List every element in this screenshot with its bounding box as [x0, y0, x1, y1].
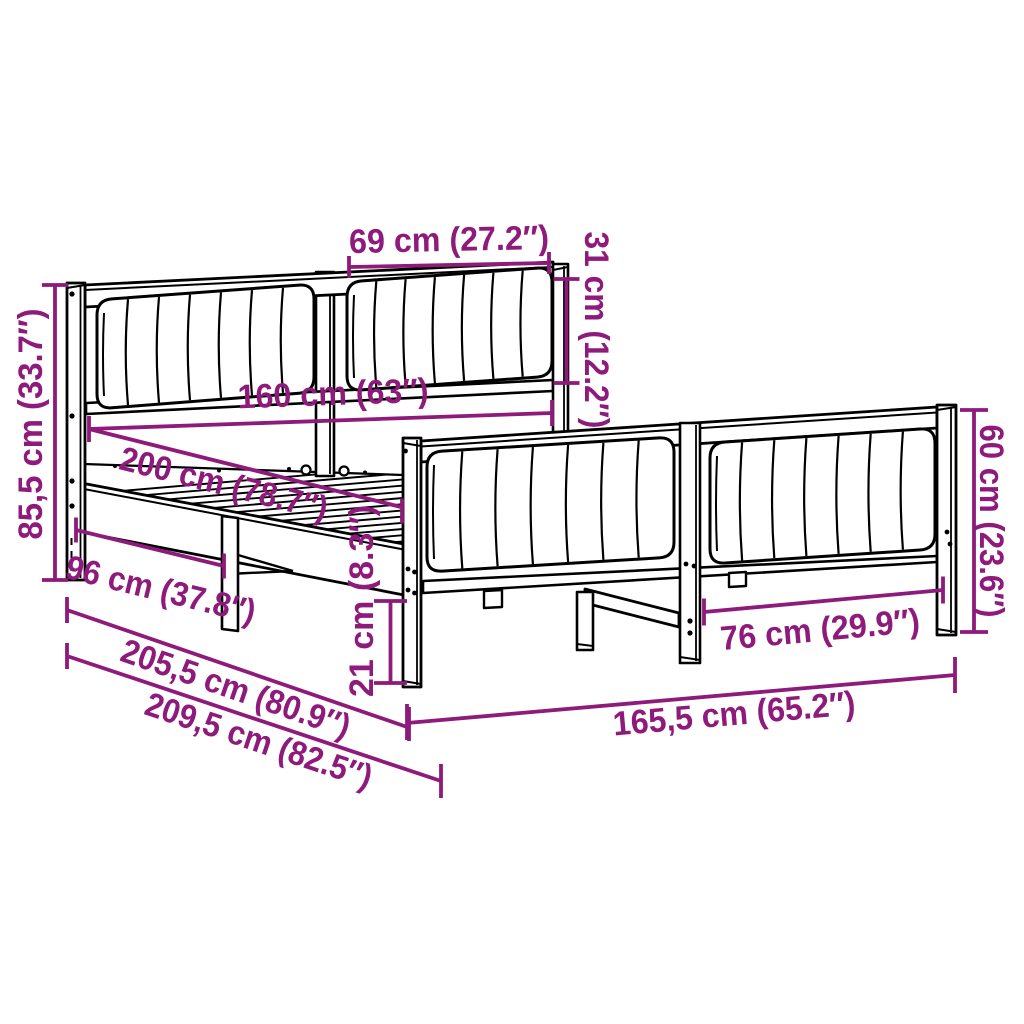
svg-text:60 cm (23.6″): 60 cm (23.6″) [972, 425, 1010, 618]
svg-text:69 cm (27.2″): 69 cm (27.2″) [349, 219, 550, 261]
svg-text:76 cm (29.9″): 76 cm (29.9″) [719, 602, 922, 658]
svg-text:31 cm (12.2″): 31 cm (12.2″) [577, 232, 615, 429]
svg-text:21 cm (8.3″): 21 cm (8.3″) [343, 505, 381, 697]
svg-text:160 cm (63″): 160 cm (63″) [237, 372, 429, 417]
svg-text:85,5 cm (33.7″): 85,5 cm (33.7″) [12, 309, 50, 540]
